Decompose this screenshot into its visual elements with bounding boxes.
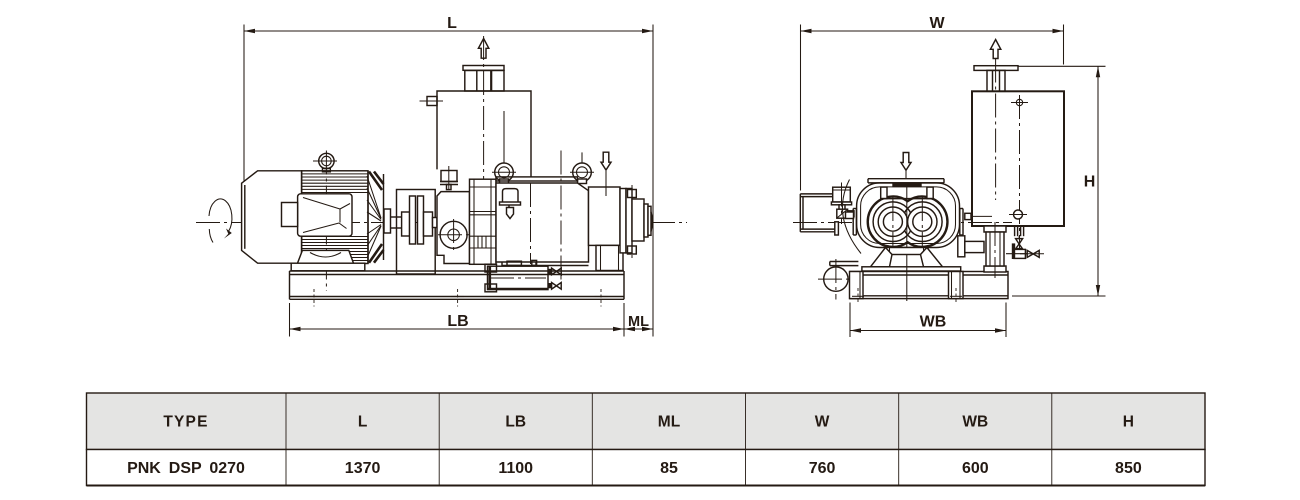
svg-text:L: L	[358, 414, 367, 431]
svg-text:LB: LB	[447, 313, 468, 330]
svg-text:ML: ML	[658, 414, 680, 431]
svg-text:L: L	[447, 15, 457, 32]
svg-text:WB: WB	[920, 314, 947, 331]
svg-text:1370: 1370	[345, 460, 381, 477]
svg-text:850: 850	[1115, 460, 1142, 477]
svg-text:LB: LB	[505, 414, 526, 431]
svg-text:H: H	[1123, 414, 1134, 431]
svg-text:WB: WB	[962, 414, 988, 431]
svg-text:PNK DSP 0270: PNK DSP 0270	[127, 460, 245, 477]
svg-text:85: 85	[660, 460, 678, 477]
svg-text:ML: ML	[628, 314, 649, 330]
svg-text:600: 600	[962, 460, 989, 477]
svg-text:TYPE: TYPE	[163, 414, 208, 431]
svg-text:1100: 1100	[498, 460, 533, 477]
svg-text:W: W	[815, 414, 830, 431]
svg-text:760: 760	[809, 460, 836, 477]
svg-text:H: H	[1084, 174, 1096, 191]
svg-text:W: W	[929, 15, 945, 32]
